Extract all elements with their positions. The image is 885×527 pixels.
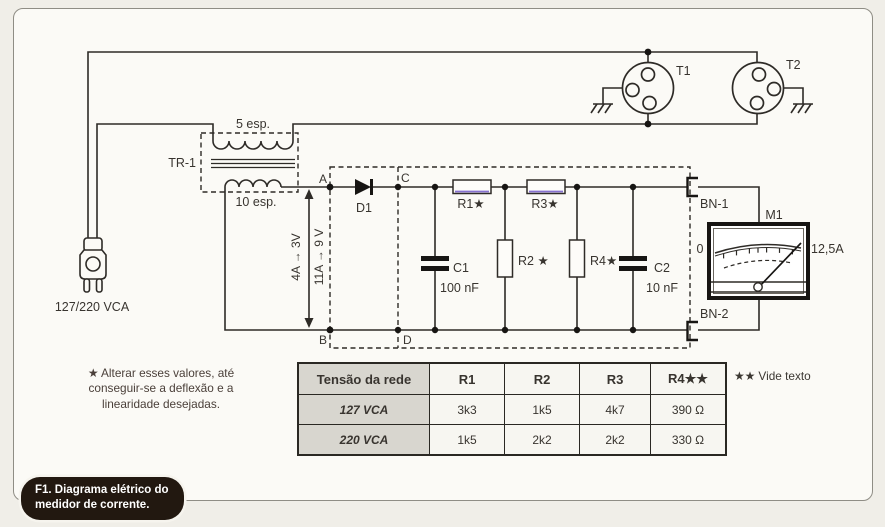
node-c-label: C [401, 171, 410, 185]
mains-plug [80, 238, 106, 292]
plug-prong-right [97, 279, 103, 292]
c2-value-label: 10 nF [646, 281, 678, 295]
secondary-turns-label: 10 esp. [235, 195, 276, 209]
capacitor-c2-plate-top [619, 256, 647, 261]
meter-m1 [709, 224, 808, 298]
transformer-tr1 [211, 141, 295, 187]
figure-caption: F1. Diagrama elétrico do medidor de corr… [21, 477, 184, 520]
row-label-127vca: 127 VCA [298, 395, 430, 425]
r1-label: R1★ [457, 197, 484, 211]
meter-fullscale-label: 12,5A [811, 242, 844, 256]
plug-voltage-label: 127/220 VCA [55, 300, 130, 314]
diode-label: D1 [356, 201, 372, 215]
transformer-box [201, 133, 298, 192]
range-right-label: 11A → 9 V [312, 229, 326, 285]
primary-coil [213, 141, 293, 149]
table-header-row: Tensão da rede R1 R2 R3 R4★★ [298, 363, 726, 395]
wire-second-rail [293, 113, 757, 141]
ground-t1 [591, 104, 613, 113]
transformer-label: TR-1 [168, 156, 196, 170]
capacitor-c1-plate-top [421, 256, 449, 261]
adjust-note-line1: ★ Alterar esses valores, até [55, 366, 267, 381]
cell-127-r3: 4k7 [580, 395, 651, 425]
wire-primary-in [97, 124, 213, 239]
c1-label: C1 [453, 261, 469, 275]
t2-label: T2 [786, 58, 801, 72]
node-b-label: B [319, 333, 327, 347]
bn1-label: BN-1 [700, 197, 729, 211]
plug-hole [86, 257, 100, 271]
wire-top-rail [88, 52, 757, 239]
meter-zero-label: 0 [697, 242, 704, 256]
ground-t2 [791, 104, 813, 113]
table-header-r1: R1 [430, 363, 505, 395]
capacitor-c2-plate-bottom [619, 266, 647, 271]
primary-turns-label: 5 esp. [236, 117, 270, 131]
diode-triangle [355, 179, 371, 195]
t1-label: T1 [676, 64, 691, 78]
adjust-note-line2: conseguir-se a deflexão e a [55, 381, 267, 396]
r4-label: R4★ [590, 254, 617, 268]
connector-bn1 [688, 178, 699, 196]
figure-caption-line1: F1. Diagrama elétrico do [35, 483, 169, 498]
row-label-220vca: 220 VCA [298, 425, 430, 456]
node-d-label: D [403, 333, 412, 347]
wire-t1-ground [603, 88, 623, 104]
r3-label: R3★ [531, 197, 558, 211]
wire-t2-ground [783, 88, 803, 104]
meter-label: M1 [765, 208, 782, 222]
cell-220-r4: 330 Ω [651, 425, 727, 456]
core-laminations [211, 160, 295, 168]
c1-value-label: 100 nF [440, 281, 479, 295]
sockets [623, 63, 784, 114]
table-header-r2: R2 [505, 363, 580, 395]
cell-127-r1: 3k3 [430, 395, 505, 425]
cell-220-r3: 2k2 [580, 425, 651, 456]
meter-pivot [754, 283, 762, 291]
resistor-values-table: Tensão da rede R1 R2 R3 R4★★ 127 VCA 3k3… [297, 362, 727, 456]
table-header-net-voltage: Tensão da rede [298, 363, 430, 395]
c2-label: C2 [654, 261, 670, 275]
cell-127-r2: 1k5 [505, 395, 580, 425]
cell-220-r2: 2k2 [505, 425, 580, 456]
vide-texto-note: ★★ Vide texto [734, 369, 811, 383]
capacitor-c1-plate-bottom [421, 266, 449, 271]
secondary-coil [225, 180, 281, 187]
plug-collar [84, 238, 102, 251]
cell-220-r1: 1k5 [430, 425, 505, 456]
bn-connectors [688, 178, 699, 340]
plug-prong-left [84, 279, 90, 292]
socket-t2 [733, 63, 784, 114]
diode-d1 [355, 179, 372, 195]
dashed-enclosures [201, 133, 690, 348]
r2-label: R2 ★ [518, 254, 549, 268]
connector-bn2 [688, 322, 699, 340]
bn2-label: BN-2 [700, 307, 729, 321]
node-a-label: A [319, 172, 327, 186]
cell-127-r4: 390 Ω [651, 395, 727, 425]
adjust-note-line3: linearidade desejadas. [55, 397, 267, 412]
resistor-r2 [498, 240, 513, 277]
figure-caption-line2: medidor de corrente. [35, 498, 169, 513]
table-row: 127 VCA 3k3 1k5 4k7 390 Ω [298, 395, 726, 425]
range-left-label: 4A → 3V [289, 233, 303, 280]
table-header-r3: R3 [580, 363, 651, 395]
table-header-r4: R4★★ [651, 363, 727, 395]
adjust-note: ★ Alterar esses valores, até conseguir-s… [55, 366, 267, 412]
resistor-r4 [570, 240, 585, 277]
socket-t1 [623, 63, 674, 114]
ground-symbols [591, 104, 813, 113]
table-row: 220 VCA 1k5 2k2 2k2 330 Ω [298, 425, 726, 456]
